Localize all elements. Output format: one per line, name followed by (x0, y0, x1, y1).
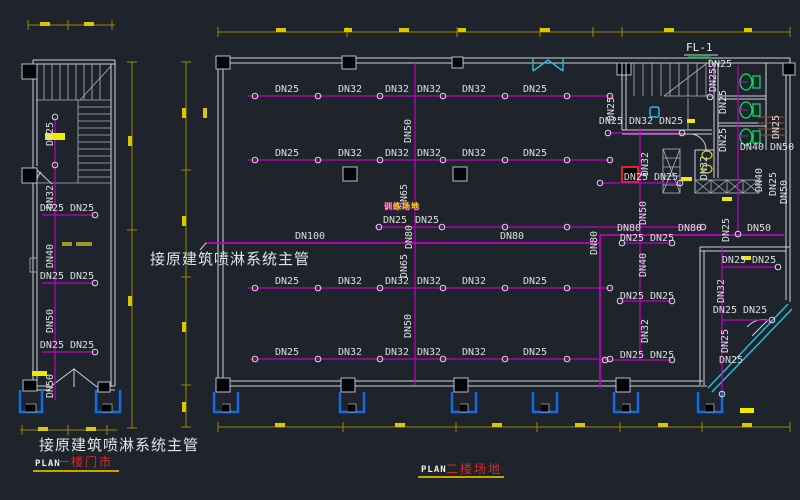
pipe-size-label: DN25 (719, 128, 729, 152)
pipe-size-label: DN50 (747, 224, 771, 234)
pipe-size-label: DN25 (46, 122, 56, 146)
pipe-size-label: DN25 DN25 (620, 292, 674, 302)
pipe-size-label: DN40 (755, 168, 765, 192)
drawing-geometry (0, 0, 800, 500)
pipe-size-label: DN50 (639, 201, 649, 225)
pipe-size-label: DN32 (462, 149, 486, 159)
pipe-size-label: DN50 (46, 309, 56, 333)
pipe-size-label: DN32 (417, 85, 441, 95)
plan1-name: 一楼门市 (57, 453, 113, 470)
pipe-size-label: DN32 (385, 85, 409, 95)
pipe-size-label: DN25 (772, 115, 782, 139)
pipe-size-label: DN25 (719, 356, 743, 366)
main-pipe-note-bottom: 接原建筑喷淋系统主管 (39, 434, 199, 455)
pipe-size-label: DN25 DN25 (40, 272, 94, 282)
pipe-size-label: DN25 (415, 216, 439, 226)
pipe-size-label: DN32 (417, 149, 441, 159)
pipe-size-label: DN50 (404, 119, 414, 143)
pipe-size-label: DN25 (709, 68, 719, 92)
pipe-size-label: DN25 DN25 (40, 341, 94, 351)
pipe-size-label: DN32 (417, 277, 441, 287)
pipe-size-label: DN40 (46, 244, 56, 268)
cad-drawing-canvas[interactable]: DN25DN32DN40DN50DN50DN25 DN25DN25 DN25DN… (0, 0, 800, 500)
pipe-size-label: DN80 (405, 225, 415, 249)
pipe-size-label: DN25 (523, 149, 547, 159)
pipe-size-label: DN32 (385, 348, 409, 358)
pipe-size-label: DN32 (385, 277, 409, 287)
pipe-size-label: DN25 DN25 (40, 204, 94, 214)
pipe-size-label: DN80 (590, 231, 600, 255)
pipe-size-label: DN40 DN50 (740, 143, 794, 153)
ladder-column (663, 149, 680, 193)
pipe-size-label: DN25 (721, 329, 731, 353)
pipe-size-label: DN32 (338, 348, 362, 358)
pipe-size-label: DN25 (523, 85, 547, 95)
pipe-size-label: DN25 (769, 172, 779, 196)
pipe-size-label: DN32 (462, 85, 486, 95)
pipe-size-label: DN100 (295, 232, 325, 242)
pipe-size-label: DN32 (700, 156, 710, 180)
pipe-size-label: DN40 (639, 253, 649, 277)
pipe-size-label: DN32 (462, 277, 486, 287)
column-bases (20, 390, 722, 412)
pipe-size-label: DN25 DN32 DN25 (599, 117, 683, 127)
pipe-size-label: DN25 (275, 348, 299, 358)
main-pipe-note-mid: 接原建筑喷淋系统主管 (150, 248, 310, 269)
pipe-size-label: DN50 (46, 374, 56, 398)
vanity-counter (695, 180, 759, 193)
pipe-size-label: DN32 (338, 277, 362, 287)
pipe-size-label: DN50 (404, 314, 414, 338)
tiny-annotation (76, 242, 92, 246)
pipe-size-label: DN32 (417, 348, 441, 358)
pipe-size-label: DN25 DN25 (624, 173, 678, 183)
pipe-size-label: DN32 (717, 279, 727, 303)
pipe-size-label: DN32 (385, 149, 409, 159)
pipe-size-label: DN25 (722, 218, 732, 242)
pipe-size-label: DN25 DN25 (722, 256, 776, 266)
floor-drain-label: FL-1 (686, 41, 713, 54)
pipe-size-label: DN65 (400, 254, 410, 278)
pipe-size-label: DN32 (338, 149, 362, 159)
pipe-size-label: DN25 (275, 85, 299, 95)
pipe-size-label: DN32 (462, 348, 486, 358)
pipe-size-label: DN25 (719, 90, 729, 114)
pipe-size-label: DN25 (275, 277, 299, 287)
pipe-size-label: DN32 (641, 319, 651, 343)
sprinkler-head (707, 94, 713, 100)
pipe-size-label: DN80 (500, 232, 524, 242)
pipe-size-label: DN25 DN25 (713, 306, 767, 316)
plan2-underline (418, 476, 504, 478)
pipe-size-label: DN32 (338, 85, 362, 95)
pipe-size-label: DN80 (678, 224, 702, 234)
area-label: 训练场地 (384, 201, 420, 212)
pipe-size-label: DN50 (780, 180, 790, 204)
pipe-size-label: DN25 (523, 348, 547, 358)
pipe-size-label: DN25 (523, 277, 547, 287)
plan2-name: 二楼场地 (446, 460, 502, 477)
pipe-size-label: DN25 DN25 (620, 234, 674, 244)
plan2-tag: PLAN (421, 465, 447, 475)
pipe-size-label: DN25 DN25 (620, 351, 674, 361)
sprinkler-head (735, 231, 741, 237)
tiny-annotation (62, 242, 72, 246)
pipe-size-label: DN25 (275, 149, 299, 159)
plan1-underline (33, 470, 119, 472)
